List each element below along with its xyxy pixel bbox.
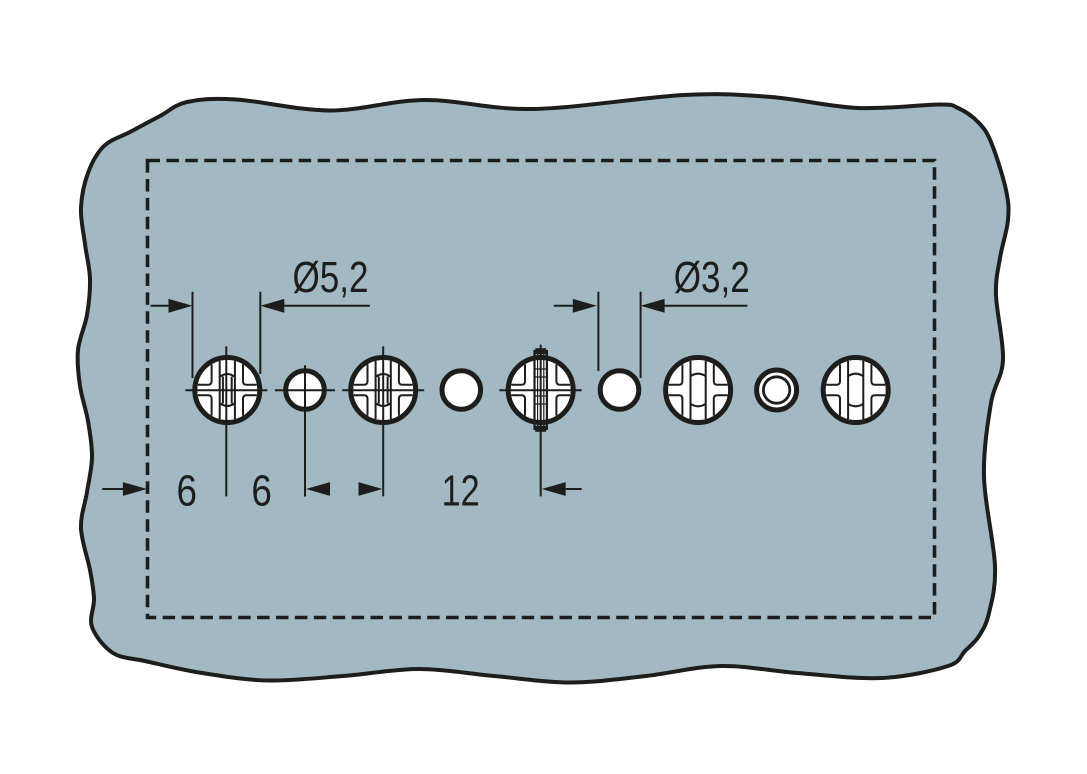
svg-text:12: 12 [442, 467, 480, 516]
svg-text:6: 6 [251, 467, 272, 516]
svg-text:Ø3,2: Ø3,2 [674, 253, 750, 302]
svg-text:Ø5,2: Ø5,2 [293, 253, 369, 302]
svg-text:6: 6 [177, 467, 198, 516]
